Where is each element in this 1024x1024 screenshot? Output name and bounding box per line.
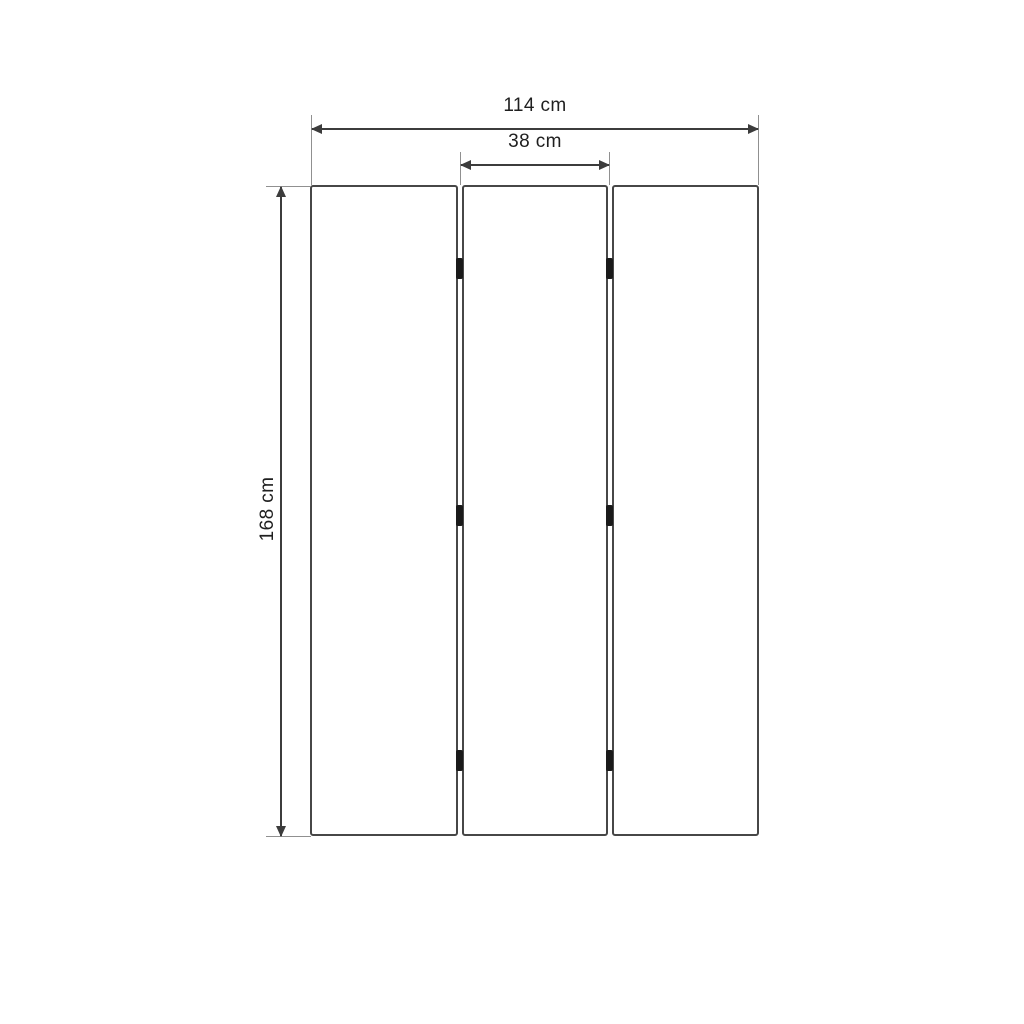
arrowhead-right-icon <box>748 124 759 134</box>
panel-width-dimension-line <box>461 164 609 166</box>
hinge-right-bottom <box>606 750 613 771</box>
arrowhead-down-icon <box>276 826 286 837</box>
hinge-right-middle <box>606 505 613 526</box>
height-dimension-label: 168 cm <box>257 459 279 559</box>
extension-line-height-bottom <box>266 836 311 837</box>
total-width-dimension-line <box>312 128 758 130</box>
panel-left <box>310 185 458 836</box>
extension-line-height-top <box>266 186 311 187</box>
hinge-left-top <box>456 258 463 279</box>
panel-middle <box>462 185 608 836</box>
arrowhead-left-icon <box>460 160 471 170</box>
arrowhead-left-icon <box>311 124 322 134</box>
height-dimension-line <box>280 187 282 836</box>
panel-width-dimension-label: 38 cm <box>461 131 609 153</box>
hinge-left-bottom <box>456 750 463 771</box>
diagram-canvas: 114 cm 38 cm 168 cm <box>0 0 1024 1024</box>
total-width-dimension-label: 114 cm <box>312 95 758 117</box>
hinge-right-top <box>606 258 613 279</box>
panel-right <box>612 185 759 836</box>
arrowhead-right-icon <box>599 160 610 170</box>
hinge-left-middle <box>456 505 463 526</box>
arrowhead-up-icon <box>276 186 286 197</box>
